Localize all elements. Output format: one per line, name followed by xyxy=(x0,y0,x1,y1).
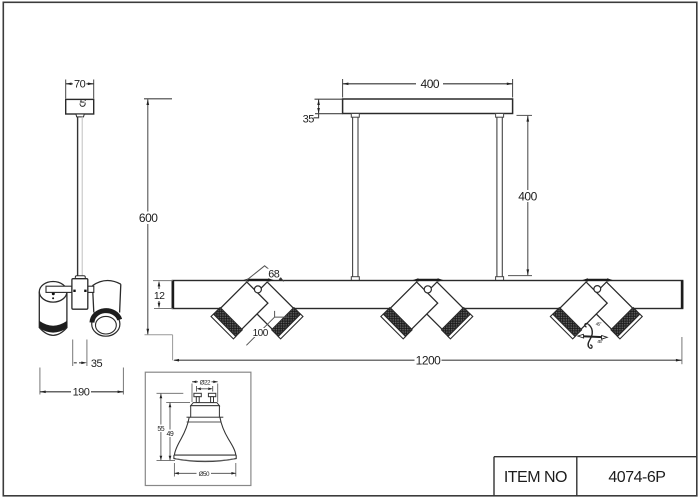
svg-text:Ø50: Ø50 xyxy=(199,471,210,478)
svg-text:70: 70 xyxy=(74,79,86,91)
svg-text:4074-6P: 4074-6P xyxy=(608,469,665,486)
svg-text:45°: 45° xyxy=(597,339,603,344)
svg-text:68: 68 xyxy=(268,269,280,281)
svg-text:55: 55 xyxy=(157,426,164,433)
svg-text:49: 49 xyxy=(167,431,174,438)
svg-text:600: 600 xyxy=(139,211,158,225)
svg-text:1200: 1200 xyxy=(416,353,442,367)
svg-text:190: 190 xyxy=(73,387,90,399)
svg-text:35: 35 xyxy=(91,358,103,370)
svg-text:45°: 45° xyxy=(596,321,602,326)
svg-text:12: 12 xyxy=(154,290,165,302)
svg-text:Ø22: Ø22 xyxy=(200,380,211,387)
svg-text:400: 400 xyxy=(421,77,440,91)
svg-text:400: 400 xyxy=(518,189,537,203)
svg-text:100: 100 xyxy=(253,328,269,339)
svg-text:ITEM NO: ITEM NO xyxy=(504,469,567,486)
svg-text:35: 35 xyxy=(303,113,315,125)
